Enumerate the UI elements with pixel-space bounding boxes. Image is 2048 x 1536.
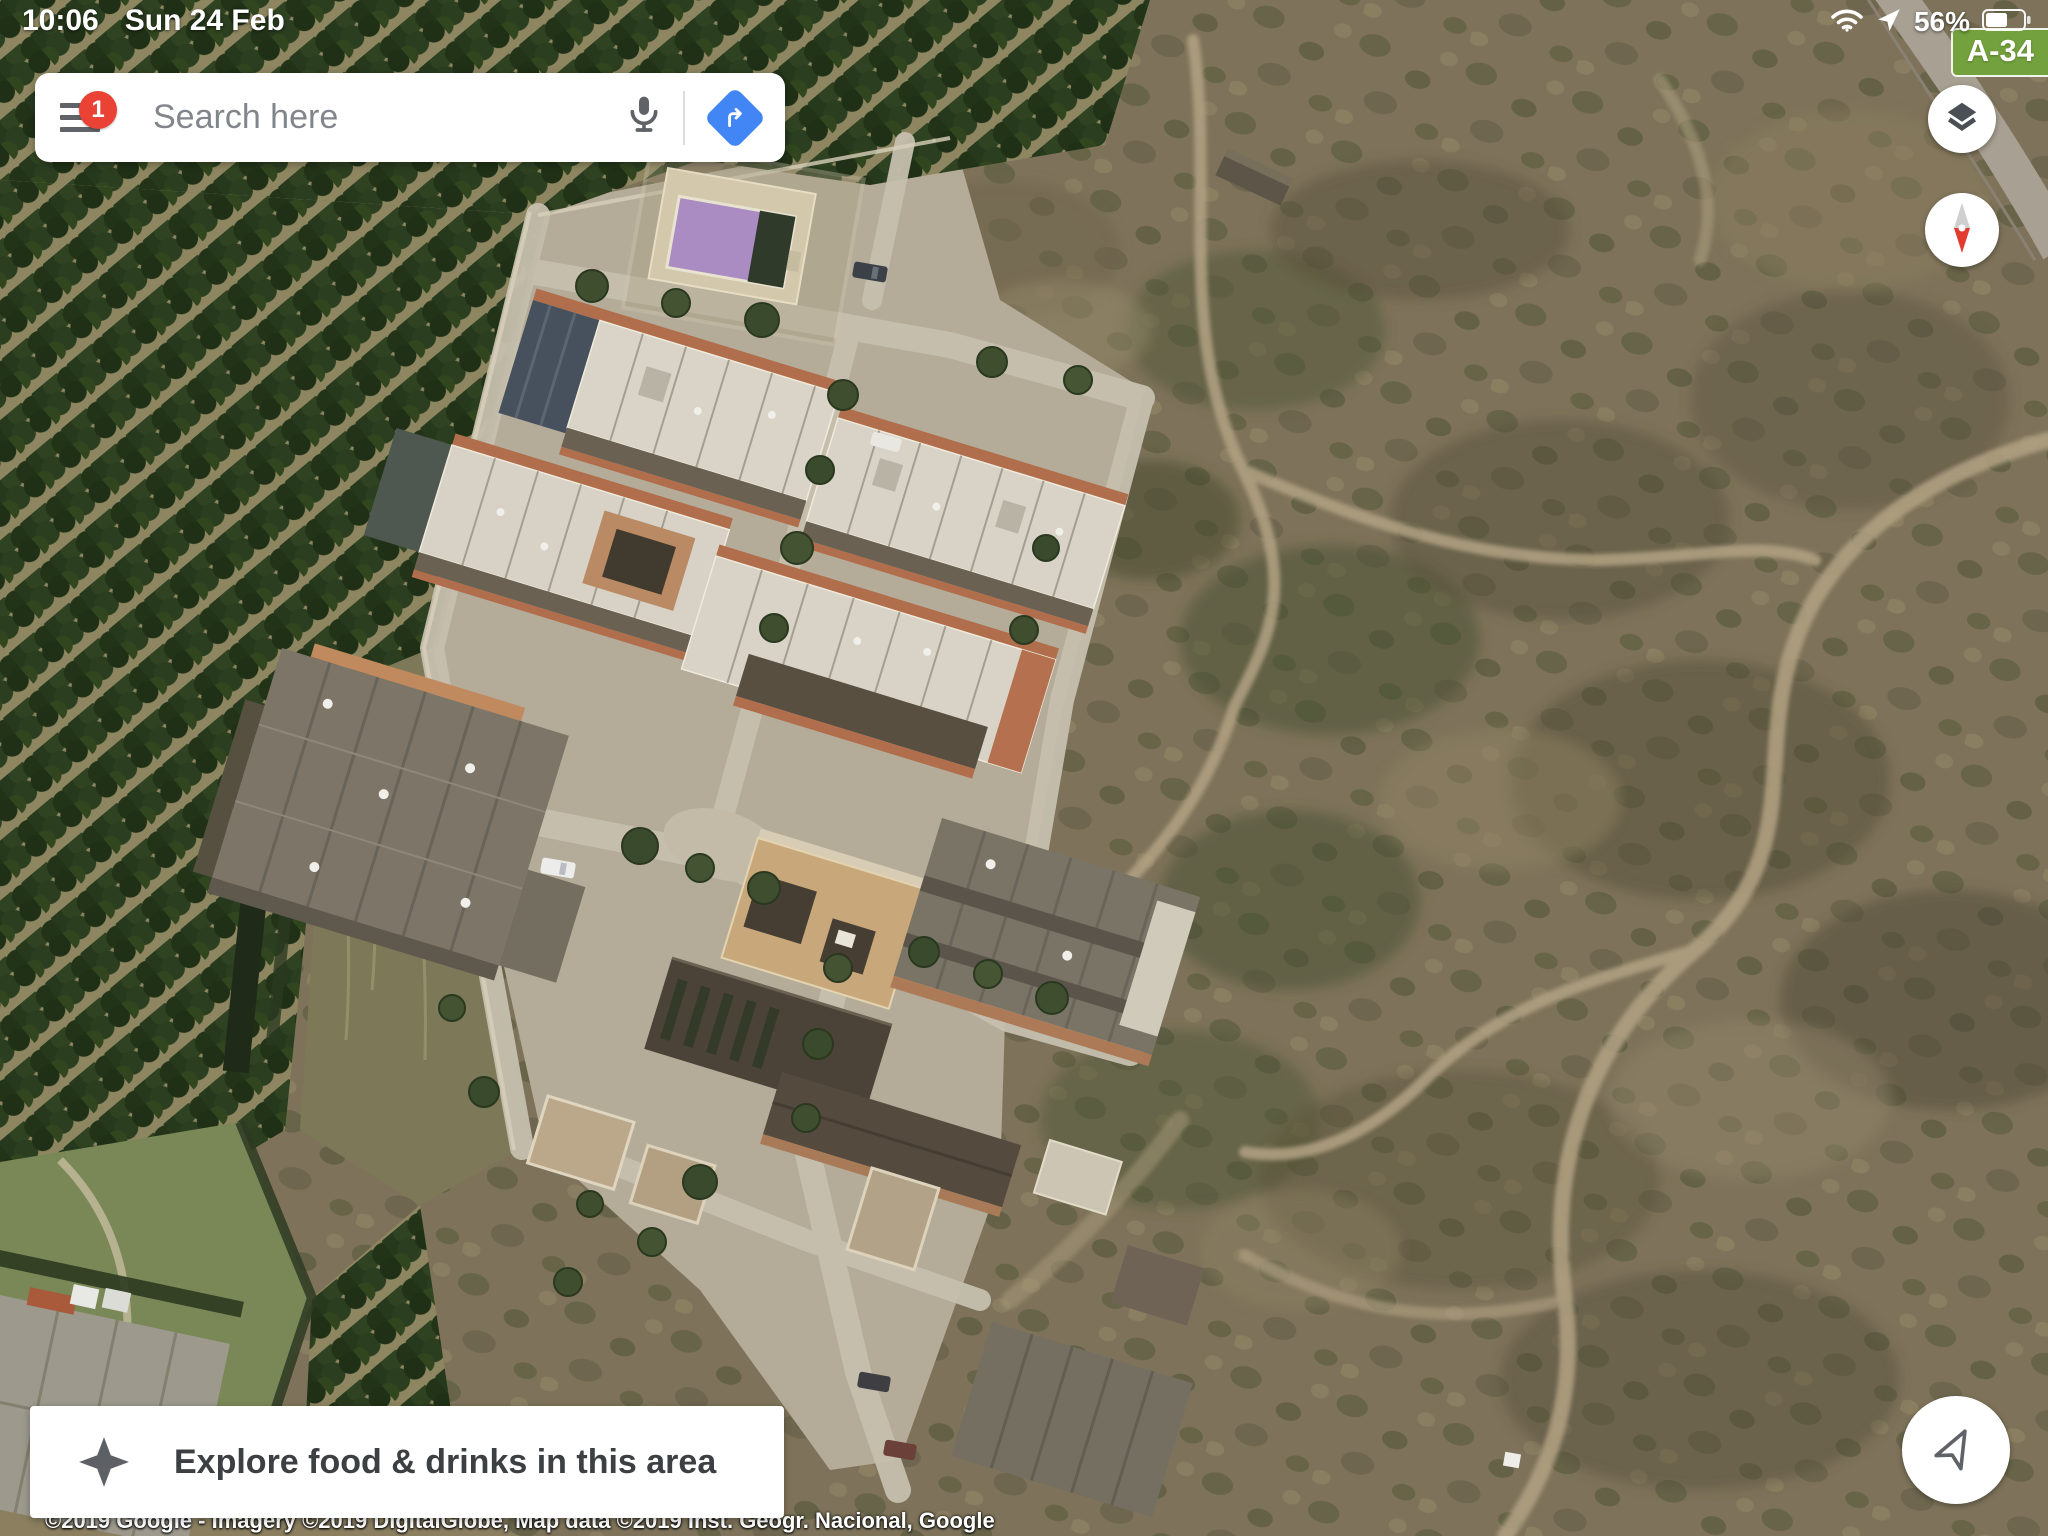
menu-button[interactable]: 1 [35,73,125,162]
explore-icon [78,1436,130,1488]
layers-button[interactable] [1928,85,1996,153]
my-location-icon [1926,1418,1986,1483]
search-bar[interactable]: 1 Search here [35,73,785,162]
explore-bar[interactable]: Explore food & drinks in this area [30,1406,784,1518]
search-input[interactable]: Search here [125,98,605,137]
layers-icon [1943,98,1981,141]
directions-button[interactable] [685,73,785,162]
locate-button[interactable] [1902,1396,2010,1504]
satellite-map[interactable] [0,0,2048,1536]
road-badge: A-34 [1951,28,2048,77]
directions-icon [704,86,766,148]
microphone-icon [624,93,664,142]
notification-badge: 1 [79,91,117,129]
compass-icon [1932,198,1992,263]
mic-button[interactable] [605,73,683,162]
swimming-pool [623,142,864,345]
compass-button[interactable] [1925,193,1999,267]
explore-label: Explore food & drinks in this area [174,1443,716,1482]
